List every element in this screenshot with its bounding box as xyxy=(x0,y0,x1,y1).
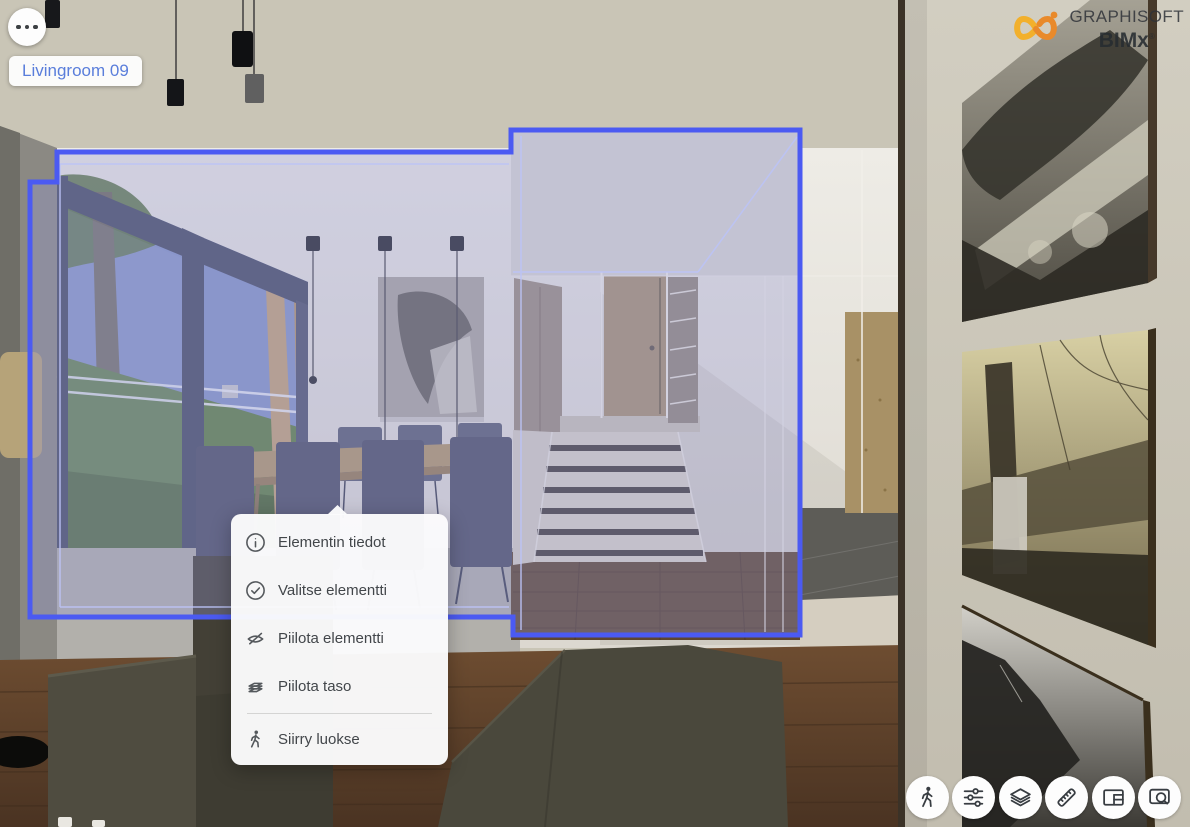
brand-product: BIMx® xyxy=(1099,27,1155,51)
ellipsis-icon xyxy=(16,25,21,30)
3d-viewport[interactable] xyxy=(0,0,1190,827)
menu-item-element-info[interactable]: Elementin tiedot xyxy=(231,518,448,566)
element-context-menu: Elementin tiedot Valitse elementti Piilo… xyxy=(231,514,448,765)
wood-panel[interactable] xyxy=(845,312,900,513)
sliders-icon xyxy=(961,785,986,810)
views-panel-button[interactable] xyxy=(1092,776,1135,819)
menu-item-hide-layer[interactable]: Piilota taso xyxy=(231,662,448,710)
menu-item-select-element[interactable]: Valitse elementti xyxy=(231,566,448,614)
eye-off-icon xyxy=(245,628,266,649)
settings-button[interactable] xyxy=(952,776,995,819)
gallery-wall[interactable] xyxy=(898,0,1190,827)
infinity-logo-icon xyxy=(1008,7,1064,45)
check-circle-icon xyxy=(245,580,266,601)
brand-name: GRAPHISOFT xyxy=(1069,7,1184,27)
viewer-toolbar xyxy=(906,776,1182,819)
zoom-extent-button[interactable] xyxy=(1138,776,1181,819)
bimx-viewer: Livingroom 09 GRAPHISOFT BIMx® Elementin… xyxy=(0,0,1190,827)
info-icon xyxy=(245,532,266,553)
layer-stack-icon xyxy=(1008,785,1033,810)
walk-icon xyxy=(245,729,266,750)
menu-item-go-to[interactable]: Siirry luokse xyxy=(231,717,448,761)
ruler-icon xyxy=(1054,785,1079,810)
walk-mode-button[interactable] xyxy=(906,776,949,819)
zoom-window-icon xyxy=(1147,785,1172,810)
measure-button[interactable] xyxy=(1045,776,1088,819)
layers-icon xyxy=(245,676,266,697)
more-menu-button[interactable] xyxy=(8,8,46,46)
room-tag-badge[interactable]: Livingroom 09 xyxy=(9,56,142,86)
layout-panel-icon xyxy=(1101,785,1126,810)
brand-logo: GRAPHISOFT BIMx® xyxy=(1008,7,1184,51)
menu-item-hide-element[interactable]: Piilota elementti xyxy=(231,614,448,662)
menu-divider xyxy=(247,713,432,714)
walk-icon xyxy=(915,785,940,810)
layers-button[interactable] xyxy=(999,776,1042,819)
